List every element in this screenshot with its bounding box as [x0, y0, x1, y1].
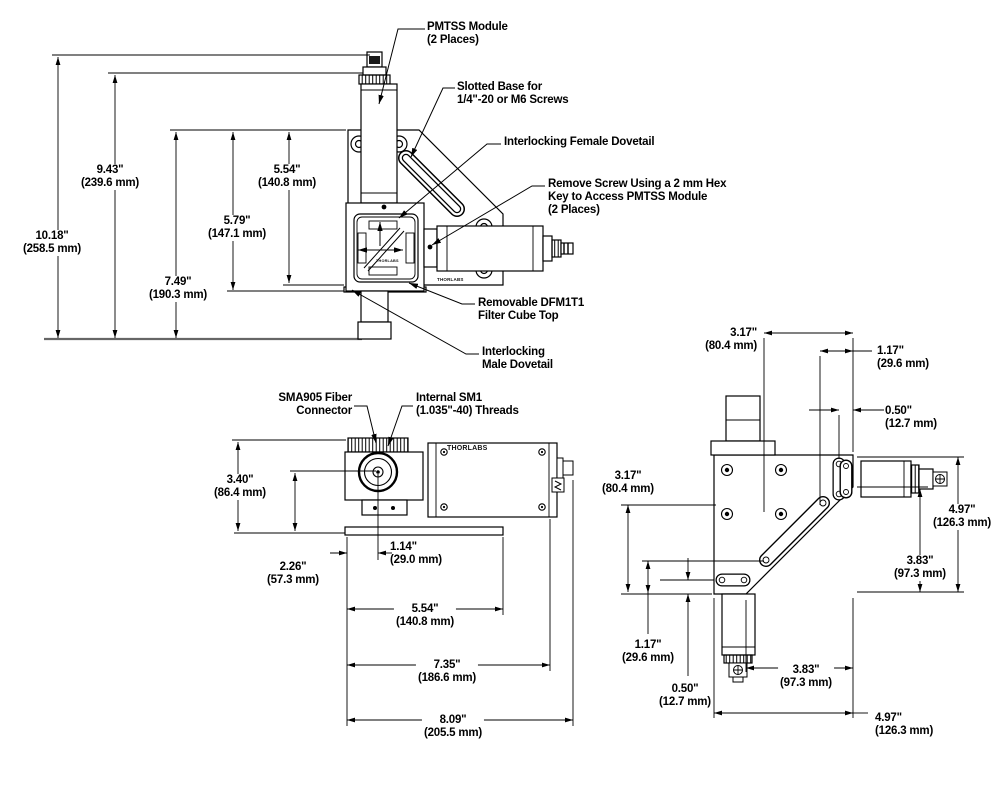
- dim-3-83-right-label: 3.83" (97.3 mm): [892, 555, 948, 581]
- dim-7-49-label: 7.49" (190.3 mm): [147, 276, 209, 302]
- dim-5-54-side-label: 5.54" (140.8 mm): [394, 603, 456, 629]
- top-module-right: [844, 461, 948, 497]
- dim-0-50-top-label: 0.50" (12.7 mm): [885, 405, 937, 431]
- dim-metric: (239.6 mm): [81, 177, 139, 190]
- dim-value: 5.79": [208, 215, 266, 228]
- brand-logo-cube: THORLABS: [376, 259, 399, 263]
- sma-head: [345, 438, 423, 515]
- dim-5-79-label: 5.79" (147.1 mm): [206, 215, 268, 241]
- callout-male-dovetail: Interlocking Male Dovetail: [482, 346, 553, 372]
- callout-filter-cube-top: Removable DFM1T1 Filter Cube Top: [478, 297, 584, 323]
- dim-0-50-bottom-label: 0.50" (12.7 mm): [659, 683, 711, 709]
- callout-female-dovetail: Interlocking Female Dovetail: [504, 136, 654, 149]
- top-plate: [714, 455, 853, 594]
- dim-value: 7.49": [149, 276, 207, 289]
- dim-3-40-label: 3.40" (86.4 mm): [212, 474, 268, 500]
- dim-value: 5.54": [258, 164, 316, 177]
- dim-4-97-bottom-label: 4.97" (126.3 mm): [875, 712, 933, 738]
- mounting-base-side: [345, 527, 503, 535]
- dim-8-09-label: 8.09" (205.5 mm): [422, 714, 484, 740]
- dim-1-14-label: 1.14" (29.0 mm): [390, 541, 442, 567]
- dimension-lines-front: [52, 55, 370, 338]
- callout-sm1-threads: Internal SM1 (1.035"-40) Threads: [416, 392, 519, 418]
- dim-3-83-bottom-label: 3.83" (97.3 mm): [778, 664, 834, 690]
- dim-3-17-top-label: 3.17" (80.4 mm): [705, 327, 757, 353]
- dim-metric: (190.3 mm): [149, 289, 207, 302]
- dim-metric: (140.8 mm): [258, 177, 316, 190]
- dim-5-54-front-label: 5.54" (140.8 mm): [256, 164, 318, 190]
- dim-9-43-label: 9.43" (239.6 mm): [79, 164, 141, 190]
- dim-metric: (258.5 mm): [23, 243, 81, 256]
- dim-1-17-top-label: 1.17" (29.6 mm): [877, 345, 929, 371]
- top-module-up: [711, 396, 775, 455]
- callout-sma905: SMA905 Fiber Connector: [278, 392, 352, 418]
- dim-7-35-label: 7.35" (186.6 mm): [416, 659, 478, 685]
- callout-remove-screw: Remove Screw Using a 2 mm Hex Key to Acc…: [548, 178, 726, 217]
- dim-3-17-left-label: 3.17" (80.4 mm): [600, 470, 656, 496]
- pmt-module-vertical: [359, 52, 397, 203]
- dim-10-18-label: 10.18" (258.5 mm): [21, 230, 83, 256]
- filter-cube-front: [344, 203, 426, 339]
- dim-value: 9.43": [81, 164, 139, 177]
- dim-2-26-label: 2.26" (57.3 mm): [267, 561, 319, 587]
- dim-4-97-right-label: 4.97" (126.3 mm): [931, 504, 993, 530]
- top-module-down: [722, 594, 755, 682]
- dim-value: 10.18": [23, 230, 81, 243]
- dim-1-17-bottom-label: 1.17" (29.6 mm): [622, 639, 674, 665]
- mechanical-drawing-page: 10.18" (258.5 mm) 9.43" (239.6 mm) 7.49"…: [0, 0, 1000, 800]
- callout-slotted-base: Slotted Base for 1/4"-20 or M6 Screws: [457, 81, 568, 107]
- pmt-module-horizontal: [424, 226, 573, 271]
- dim-metric: (147.1 mm): [208, 228, 266, 241]
- callout-pmtss-module: PMTSS Module (2 Places): [427, 21, 508, 47]
- brand-logo-plate: THORLABS: [437, 277, 464, 282]
- bottom-adapter: [358, 291, 391, 339]
- pmt-box-side: [428, 443, 573, 517]
- brand-logo-side-box: THORLABS: [447, 445, 488, 452]
